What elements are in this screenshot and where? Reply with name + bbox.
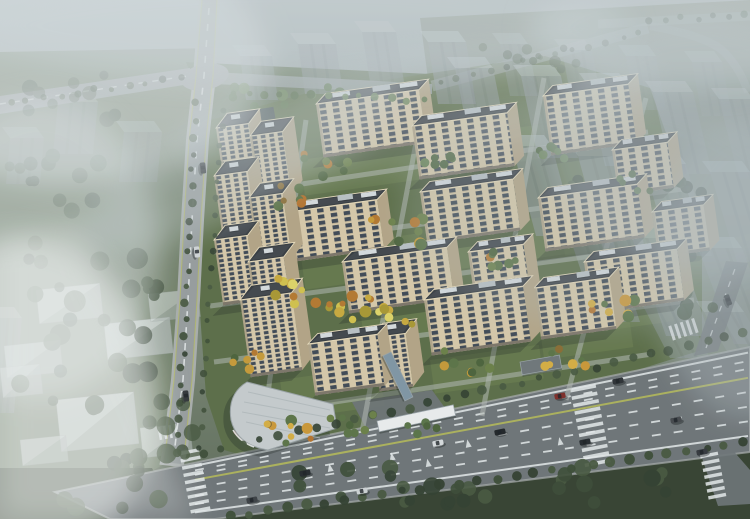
cool-tint <box>0 0 750 519</box>
aerial-rendering <box>0 0 750 519</box>
aerial-rendering-canvas <box>0 0 750 519</box>
fog-overlay <box>0 0 750 519</box>
